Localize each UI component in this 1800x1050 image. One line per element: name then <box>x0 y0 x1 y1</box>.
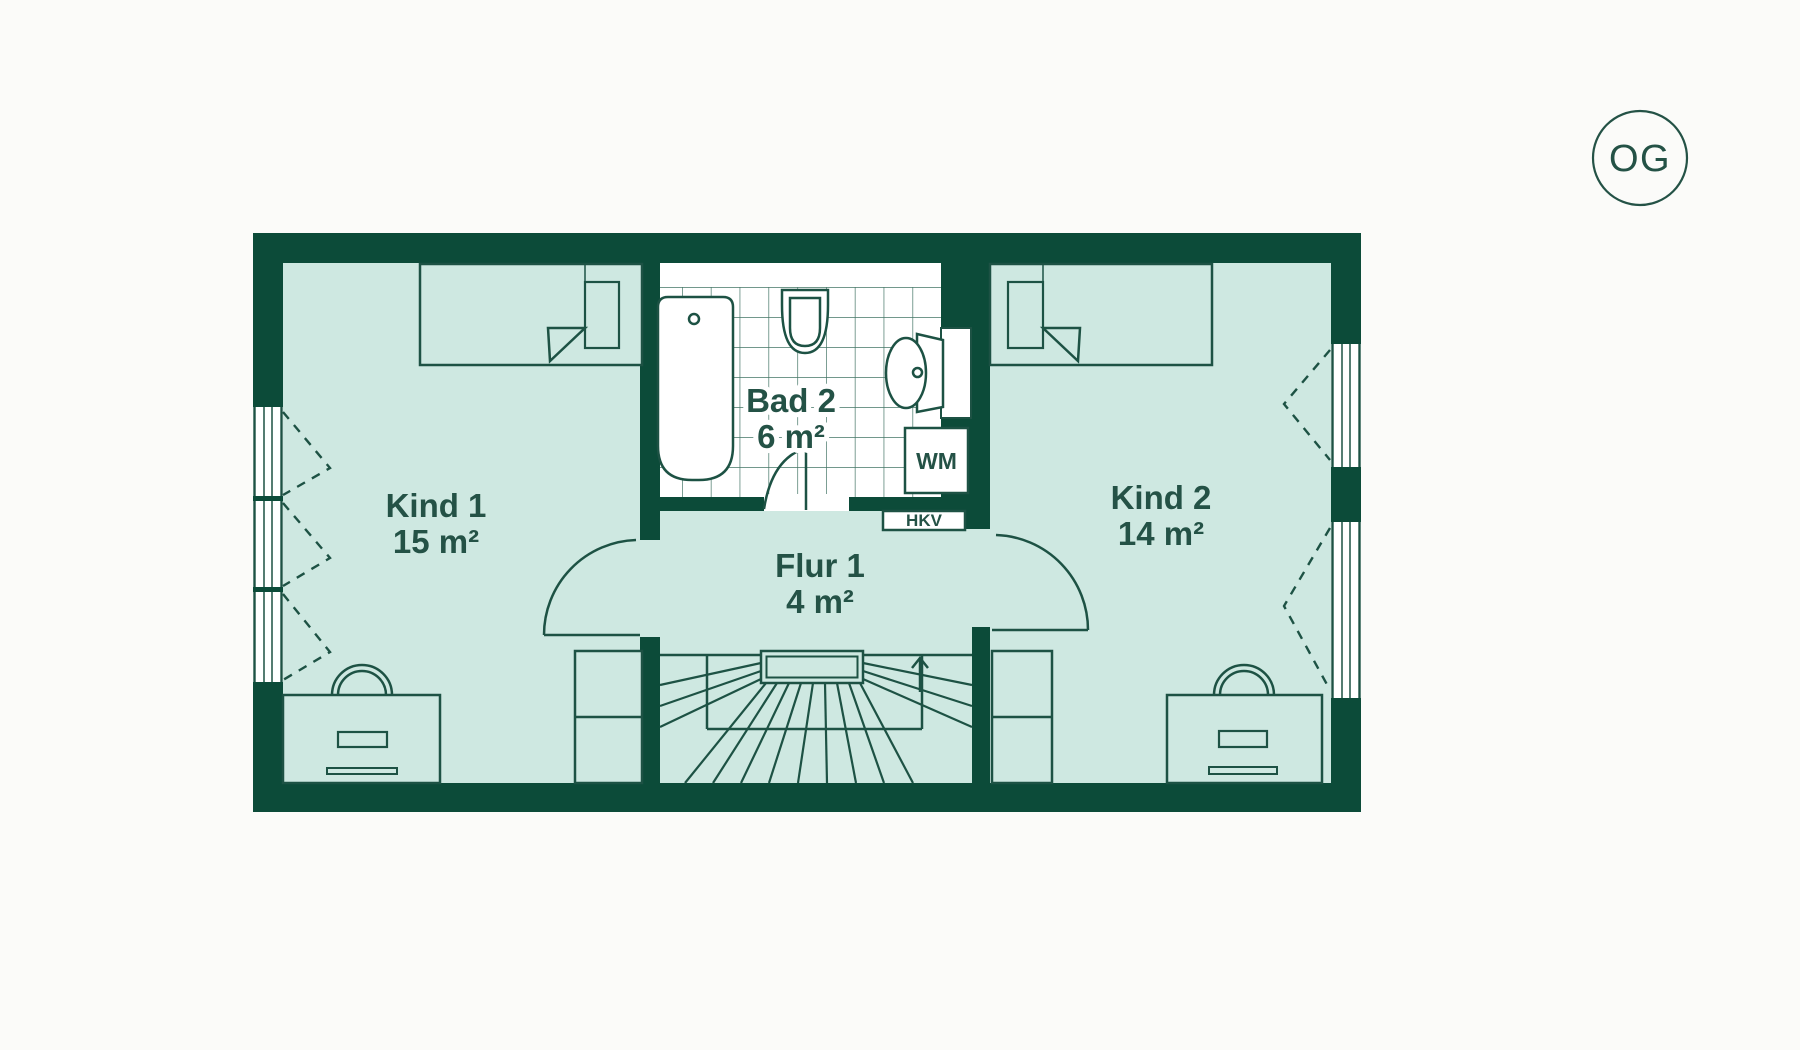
floor-plan-canvas: WM HKV Kind 1 15 m² Kind 2 14 m² Bad 2 6… <box>0 0 1800 1050</box>
room-name: Kind 2 <box>1111 479 1212 516</box>
room-label-flur1: Flur 1 4 m² <box>775 547 865 620</box>
washing-machine: WM <box>905 428 968 493</box>
window-kind2-lower <box>1331 522 1361 698</box>
wardrobe-kind2 <box>992 651 1052 783</box>
room-name: Flur 1 <box>775 547 865 584</box>
window-kind1 <box>253 407 283 682</box>
wall-kind2-lower <box>972 627 990 783</box>
room-name: Kind 1 <box>386 487 487 524</box>
stair-landing <box>761 651 863 683</box>
window-kind2-upper <box>1331 344 1361 467</box>
bed-kind2 <box>990 264 1212 365</box>
desk-kind2 <box>1167 695 1322 783</box>
hkv-box: HKV <box>883 511 965 530</box>
room-label-kind2: Kind 2 14 m² <box>1111 479 1212 552</box>
wall-niche <box>941 328 971 418</box>
desk-kind1 <box>283 695 440 783</box>
room-label-bad2: Bad 2 6 m² <box>746 382 836 455</box>
wardrobe-kind1 <box>575 651 642 783</box>
sink-faucet <box>913 368 922 377</box>
hkv-label: HKV <box>906 511 943 530</box>
wall-flur-top-right <box>849 497 941 511</box>
room-area: 4 m² <box>786 583 854 620</box>
floor-plan: WM HKV Kind 1 15 m² Kind 2 14 m² Bad 2 6… <box>253 233 1361 812</box>
room-area: 6 m² <box>757 418 825 455</box>
bed-kind1 <box>420 264 642 365</box>
room-label-kind1: Kind 1 15 m² <box>386 487 487 560</box>
room-area: 15 m² <box>393 523 479 560</box>
bathtub-drain <box>689 314 699 324</box>
washing-machine-label: WM <box>916 448 957 474</box>
toilet <box>782 290 828 353</box>
sink <box>886 334 943 412</box>
floor-badge-label: OG <box>1609 138 1671 180</box>
exterior-wall-bottom <box>253 783 1361 812</box>
room-name: Bad 2 <box>746 382 836 419</box>
floor-badge: OG <box>1593 111 1687 205</box>
room-area: 14 m² <box>1118 515 1204 552</box>
wall-flur-top-left <box>660 497 764 511</box>
bathtub <box>658 297 733 480</box>
exterior-wall-top <box>253 233 1361 263</box>
